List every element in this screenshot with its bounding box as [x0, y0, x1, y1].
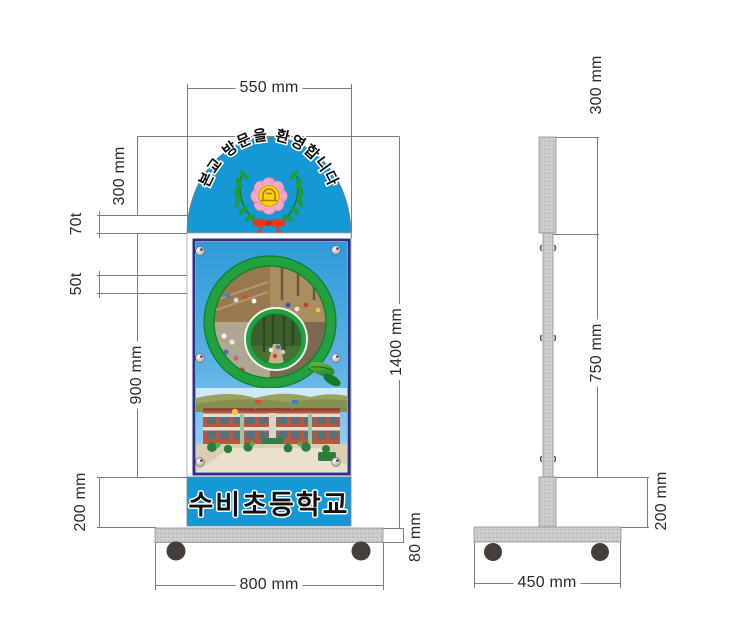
dim-label-panel-thickness: 50t: [69, 273, 85, 296]
dimension-lines: [97, 84, 649, 590]
dim-label-base-plate-height: 80 mm: [408, 512, 424, 562]
school-building-photo: [196, 388, 347, 472]
technical-drawing-canvas: 본교 방문을 환영합니다: [0, 0, 730, 630]
screw: [332, 458, 341, 467]
dim-label-front-top-width: 550 mm: [236, 80, 303, 96]
dim-label-overall-height: 1400 mm: [389, 304, 405, 380]
side-lower-section: [539, 477, 556, 527]
dim-label-side-header-height: 300 mm: [589, 56, 605, 115]
side-base-plate: [474, 527, 621, 542]
dim-label-side-lower-height: 200 mm: [654, 472, 670, 531]
screw: [196, 354, 205, 363]
dim-label-name-band-height: 200 mm: [73, 473, 89, 532]
photo-collage: [196, 242, 347, 472]
dim-label-side-pole-height: 750 mm: [589, 320, 605, 387]
dim-label-photo-panel-height: 900 mm: [129, 342, 145, 409]
wheel: [352, 542, 371, 561]
wheel: [167, 542, 186, 561]
screw: [332, 354, 341, 363]
dim-label-arch-thickness: 70t: [69, 213, 85, 236]
wheel: [484, 543, 502, 561]
dim-label-side-base-depth: 450 mm: [514, 575, 581, 591]
screw: [196, 458, 205, 467]
screw: [196, 247, 205, 256]
forest-circle: [246, 309, 307, 370]
dim-label-front-arch-height: 300 mm: [112, 147, 128, 206]
side-pole: [543, 233, 553, 477]
front-base-plate: [155, 528, 383, 543]
drawing-artwork: 본교 방문을 환영합니다: [0, 0, 730, 630]
wheel: [591, 543, 609, 561]
side-header-slab: [539, 137, 556, 233]
school-name-text: 수비초등학교: [188, 478, 350, 526]
screw: [332, 246, 341, 255]
dim-label-base-width: 800 mm: [236, 577, 303, 593]
